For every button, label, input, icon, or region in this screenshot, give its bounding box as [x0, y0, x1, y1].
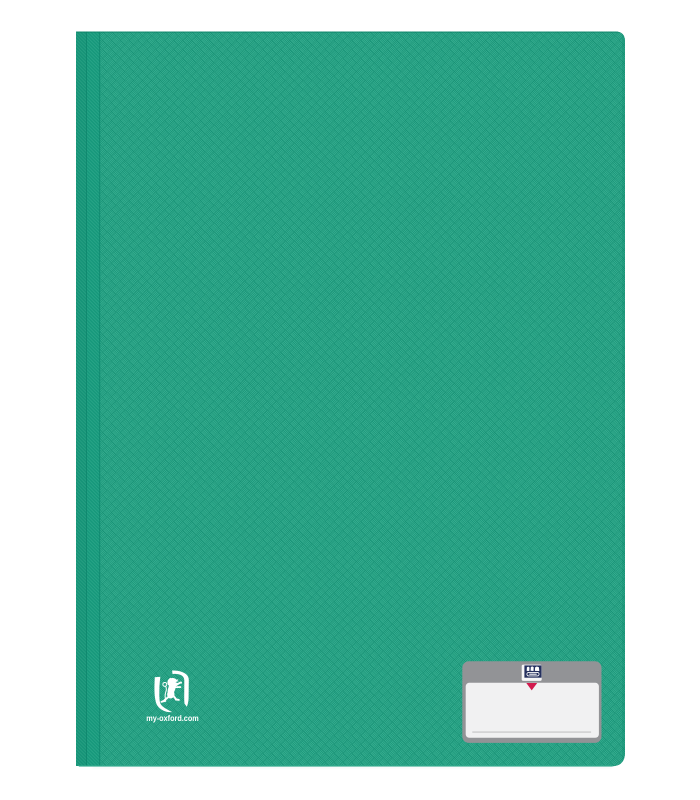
svg-text:my-oxford.com: my-oxford.com: [146, 713, 199, 723]
